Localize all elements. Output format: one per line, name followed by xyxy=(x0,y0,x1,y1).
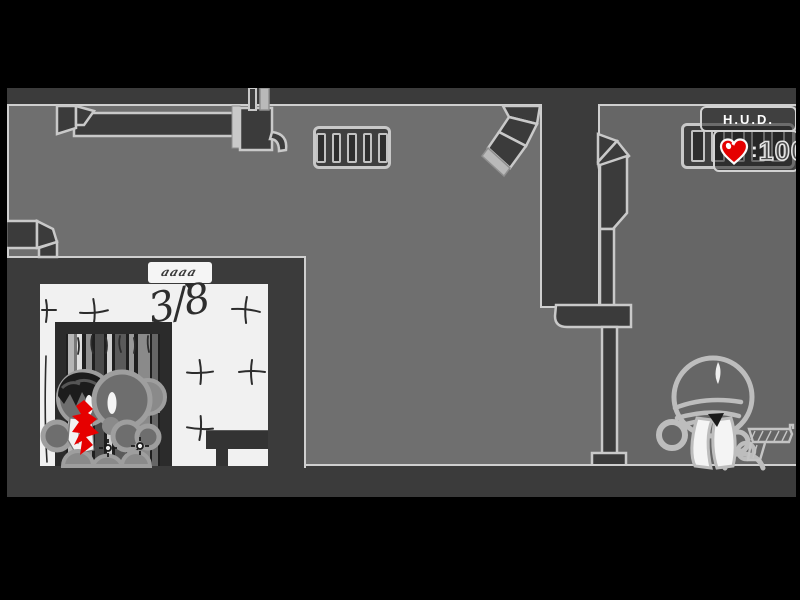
room-ledge-post xyxy=(216,448,228,466)
pillar-ducts xyxy=(470,85,670,485)
vent-slot xyxy=(691,130,705,162)
vent-slot xyxy=(332,133,342,163)
hud-title: H.U.D. xyxy=(700,106,797,132)
hud-separator: : xyxy=(751,140,758,163)
vent-slot xyxy=(378,133,388,163)
room-ledge xyxy=(206,430,268,449)
vest-left xyxy=(692,418,712,468)
letterbox-top xyxy=(0,0,800,88)
letterbox-left xyxy=(0,0,7,600)
head-flame xyxy=(716,362,721,384)
floor xyxy=(306,466,796,497)
player-character[interactable] xyxy=(645,350,800,470)
hud-health-value: 100 xyxy=(759,136,800,167)
vent-slot xyxy=(347,133,357,163)
heart-icon xyxy=(719,137,749,166)
bodies-pile xyxy=(36,348,190,468)
ceiling-duct xyxy=(0,80,300,160)
game-stage[interactable]: aaaa 3/8 xyxy=(0,0,800,600)
letterbox-bottom xyxy=(0,497,800,600)
letterbox-right xyxy=(796,0,800,600)
vent-slot xyxy=(316,133,326,163)
vent-grille-icon xyxy=(313,126,391,169)
wall-duct-elbow xyxy=(0,218,70,263)
hud-health-panel: : 100 xyxy=(713,130,799,172)
vent-slot xyxy=(363,133,373,163)
